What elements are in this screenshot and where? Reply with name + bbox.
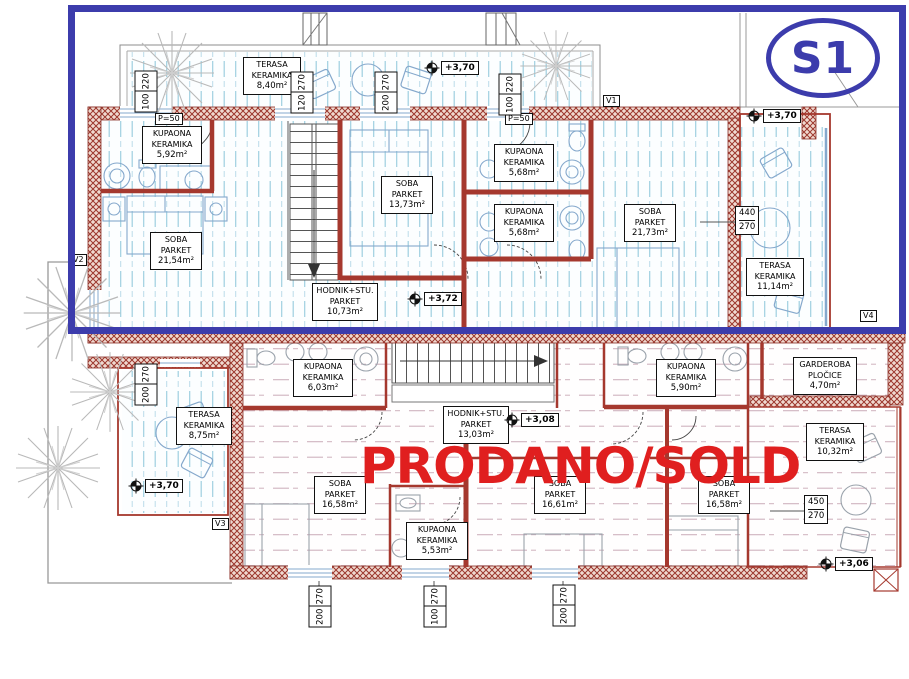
room-area: 6,03m² — [295, 383, 351, 394]
room-finish: KERAMIKA — [408, 536, 466, 547]
room-label-kupaona-553: KUPAONA KERAMIKA 5,53m² — [406, 522, 468, 560]
room-label-kupaona-568a: KUPAONA KERAMIKA 5,68m² — [494, 144, 554, 182]
room-area: 5,68m² — [496, 168, 552, 179]
room-area: 5,92m² — [144, 150, 200, 161]
unit-badge: S1 — [766, 18, 880, 98]
room-name: GARDEROBA — [795, 360, 855, 371]
room-finish: KERAMIKA — [658, 373, 714, 384]
room-area: 16,58m² — [700, 500, 748, 511]
room-label-kupaona-592: KUPAONA KERAMIKA 5,92m² — [142, 126, 202, 164]
room-area: 10,73m² — [314, 307, 376, 318]
room-name: TERASA — [178, 410, 230, 421]
dim-450-270: 450 270 — [804, 495, 828, 524]
room-name: SOBA — [383, 179, 431, 190]
room-label-soba-2154: SOBA PARKET 21,54m² — [150, 232, 202, 270]
level-icon — [128, 478, 144, 494]
room-label-terasa-875: TERASA KERAMIKA 8,75m² — [176, 407, 232, 445]
room-name: TERASA — [245, 60, 299, 71]
room-finish: PARKET — [383, 190, 431, 201]
room-finish: PARKET — [626, 218, 674, 229]
vent-label-v4: V4 — [860, 310, 877, 322]
vent-label-v1: V1 — [603, 95, 620, 107]
room-area: 5,68m² — [496, 228, 552, 239]
room-finish: PARKET — [152, 246, 200, 257]
level-icon — [407, 291, 423, 307]
room-name: TERASA — [748, 261, 802, 272]
dim-100-270-bottom: 100270 — [424, 586, 447, 628]
room-area: 5,53m² — [408, 546, 466, 557]
dim-100-220-a: 100220 — [135, 71, 158, 113]
dim-200-270-terrace: 200270 — [135, 364, 158, 406]
level-icon — [818, 556, 834, 572]
dim-100-220-b: 100220 — [499, 74, 522, 116]
level-marker-lower-terrace-right: +3,06 — [818, 556, 873, 572]
level-marker-upper-terrace-top: +3,70 — [424, 60, 479, 76]
room-name: SOBA — [152, 235, 200, 246]
level-icon — [746, 108, 762, 124]
door-label-p50-left: P=50 — [155, 113, 183, 125]
room-area: 21,54m² — [152, 256, 200, 267]
room-area: 11,14m² — [748, 282, 802, 293]
room-area: 10,32m² — [808, 447, 862, 458]
room-name: HODNIK+STU. — [445, 409, 507, 420]
room-finish: PARKET — [445, 420, 507, 431]
dim-200-270-bottom-right: 200270 — [553, 585, 576, 627]
room-finish: PARKET — [314, 297, 376, 308]
room-area: 8,75m² — [178, 431, 230, 442]
room-label-garderoba-470: GARDEROBA PLOČICE 4,70m² — [793, 357, 857, 395]
room-finish: PLOČICE — [795, 371, 855, 382]
level-marker-upper-terrace-right: +3,70 — [746, 108, 801, 124]
room-finish: PARKET — [316, 490, 364, 501]
level-icon — [504, 412, 520, 428]
room-name: TERASA — [808, 426, 862, 437]
room-finish: KERAMIKA — [144, 140, 200, 151]
room-finish: KERAMIKA — [496, 218, 552, 229]
room-label-terasa-1032: TERASA KERAMIKA 10,32m² — [806, 423, 864, 461]
room-area: 21,73m² — [626, 228, 674, 239]
room-name: KUPAONA — [496, 147, 552, 158]
room-finish: KERAMIKA — [748, 272, 802, 283]
room-area: 13,73m² — [383, 200, 431, 211]
level-marker-lower-hodnik: +3,08 — [504, 412, 559, 428]
level-icon — [424, 60, 440, 76]
room-area: 5,90m² — [658, 383, 714, 394]
vent-label-v2: V2 — [70, 254, 87, 266]
room-area: 16,61m² — [536, 500, 584, 511]
room-label-kupaona-590: KUPAONA KERAMIKA 5,90m² — [656, 359, 716, 397]
room-finish: KERAMIKA — [808, 437, 862, 448]
room-name: KUPAONA — [496, 207, 552, 218]
room-name: SOBA — [316, 479, 364, 490]
level-marker-lower-terrace-left: +3,70 — [128, 478, 183, 494]
room-label-kupaona-568b: KUPAONA KERAMIKA 5,68m² — [494, 204, 554, 242]
room-label-soba-2173: SOBA PARKET 21,73m² — [624, 204, 676, 242]
room-area: 16,58m² — [316, 500, 364, 511]
room-label-terasa-1114: TERASA KERAMIKA 11,14m² — [746, 258, 804, 296]
dim-200-270-top: 200270 — [375, 72, 398, 114]
room-name: KUPAONA — [144, 129, 200, 140]
dim-120-270: 120270 — [291, 72, 314, 114]
vent-label-v3: V3 — [212, 518, 229, 530]
room-name: SOBA — [626, 207, 674, 218]
room-label-kupaona-603: KUPAONA KERAMIKA 6,03m² — [293, 359, 353, 397]
room-finish: KERAMIKA — [178, 421, 230, 432]
sold-overlay-text: PRODANO/SOLD — [360, 437, 800, 495]
level-marker-upper-hodnik: +3,72 — [407, 291, 462, 307]
dim-200-270-bottom-left: 200270 — [309, 586, 332, 628]
room-name: KUPAONA — [408, 525, 466, 536]
room-name: KUPAONA — [658, 362, 714, 373]
room-name: KUPAONA — [295, 362, 351, 373]
room-label-soba-1658-left: SOBA PARKET 16,58m² — [314, 476, 366, 514]
room-label-soba-1373: SOBA PARKET 13,73m² — [381, 176, 433, 214]
room-name: HODNIK+STU. — [314, 286, 376, 297]
room-area: 4,70m² — [795, 381, 855, 392]
dim-440-270: 440 270 — [735, 206, 759, 235]
room-finish: KERAMIKA — [295, 373, 351, 384]
floor-plan-page: TERASA KERAMIKA 8,40m² KUPAONA KERAMIKA … — [0, 0, 909, 679]
room-finish: KERAMIKA — [496, 158, 552, 169]
room-label-hodnik-1073: HODNIK+STU. PARKET 10,73m² — [312, 283, 378, 321]
